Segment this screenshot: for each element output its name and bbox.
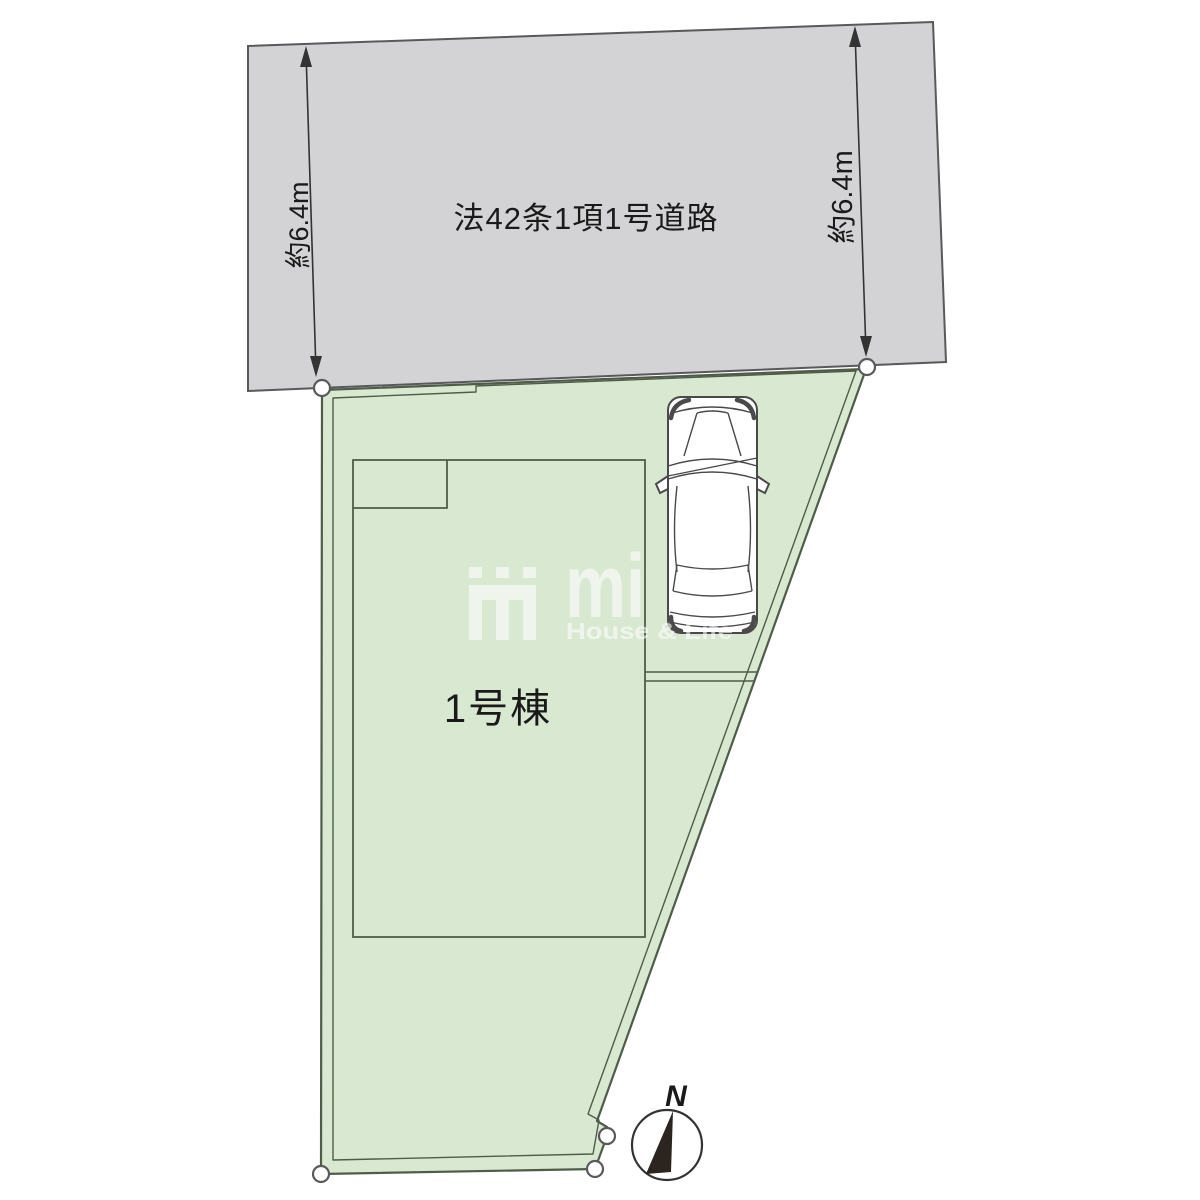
boundary-marker <box>313 1166 329 1182</box>
site-plan-svg: 法42条1項1号道路 1号棟 mi House & Life <box>0 0 1200 1200</box>
building-label: 1号棟 <box>444 687 552 731</box>
dimension-left-label: 約6.4m <box>284 181 314 268</box>
watermark-logomark-icon <box>469 567 536 640</box>
compass-north-label: N <box>665 1080 688 1113</box>
boundary-marker <box>859 359 875 375</box>
site-plan-diagram: 法42条1項1号道路 1号棟 mi House & Life <box>0 0 1200 1200</box>
compass-icon: N <box>632 1080 702 1180</box>
boundary-marker <box>587 1161 603 1177</box>
car-icon <box>656 397 769 633</box>
land-plot <box>321 369 866 1174</box>
watermark-tagline: House & Life <box>566 618 733 644</box>
boundary-marker <box>314 380 330 396</box>
boundary-marker <box>599 1128 615 1144</box>
dimension-right-label: 約6.4m <box>826 150 859 243</box>
road-label: 法42条1項1号道路 <box>454 201 719 236</box>
